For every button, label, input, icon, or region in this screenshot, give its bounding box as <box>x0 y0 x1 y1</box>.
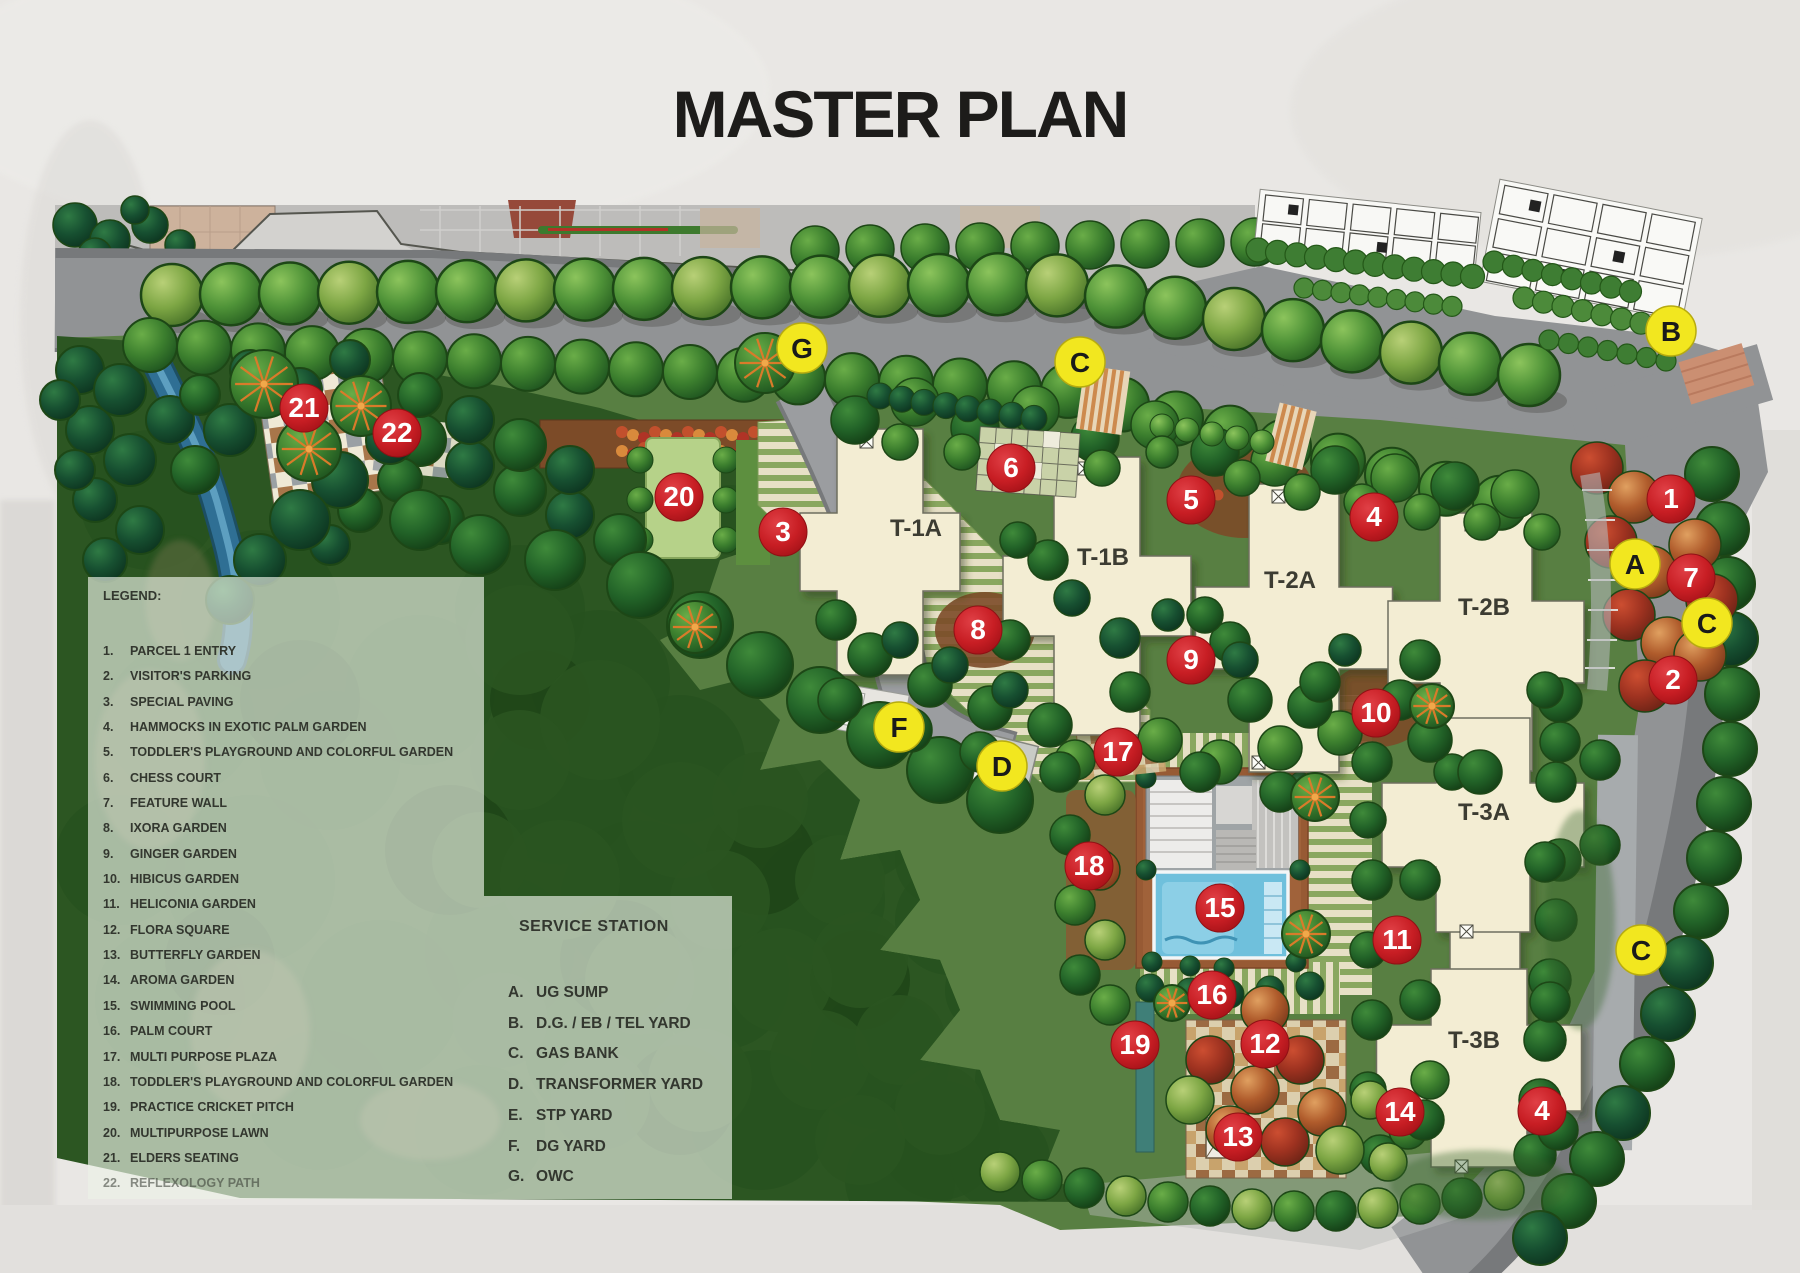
svg-text:7: 7 <box>1683 562 1699 593</box>
svg-text:5: 5 <box>1183 484 1199 515</box>
svg-text:1: 1 <box>1663 483 1679 514</box>
svg-text:T-2A: T-2A <box>1264 567 1316 594</box>
svg-text:16: 16 <box>1196 979 1227 1010</box>
svg-text:11: 11 <box>1382 924 1412 955</box>
svg-text:20: 20 <box>663 481 694 512</box>
svg-text:21: 21 <box>288 392 319 423</box>
svg-text:6: 6 <box>1003 452 1019 483</box>
svg-text:A: A <box>1625 549 1645 580</box>
svg-text:C: C <box>1697 608 1717 639</box>
svg-text:15: 15 <box>1204 892 1235 923</box>
svg-text:C: C <box>1631 935 1651 966</box>
svg-text:D: D <box>992 751 1012 782</box>
svg-text:4: 4 <box>1534 1095 1550 1126</box>
svg-text:T-1A: T-1A <box>890 515 942 542</box>
svg-text:13: 13 <box>1222 1121 1253 1152</box>
svg-text:2: 2 <box>1665 664 1681 695</box>
svg-text:22: 22 <box>381 417 412 448</box>
svg-text:18: 18 <box>1073 850 1104 881</box>
svg-text:G: G <box>791 333 813 364</box>
svg-text:14: 14 <box>1384 1096 1416 1127</box>
svg-text:19: 19 <box>1119 1029 1150 1060</box>
svg-text:F: F <box>890 712 907 743</box>
svg-text:T-2B: T-2B <box>1458 594 1510 621</box>
svg-text:12: 12 <box>1249 1028 1280 1059</box>
svg-text:B: B <box>1661 316 1681 347</box>
svg-text:4: 4 <box>1366 501 1382 532</box>
svg-text:C: C <box>1070 347 1090 378</box>
svg-text:T-3B: T-3B <box>1448 1027 1500 1054</box>
svg-text:T-3A: T-3A <box>1458 799 1510 826</box>
svg-text:17: 17 <box>1102 736 1133 767</box>
svg-text:3: 3 <box>775 516 791 547</box>
svg-text:10: 10 <box>1360 697 1391 728</box>
svg-text:9: 9 <box>1183 644 1199 675</box>
svg-text:T-1B: T-1B <box>1077 544 1129 571</box>
svg-text:8: 8 <box>970 614 986 645</box>
